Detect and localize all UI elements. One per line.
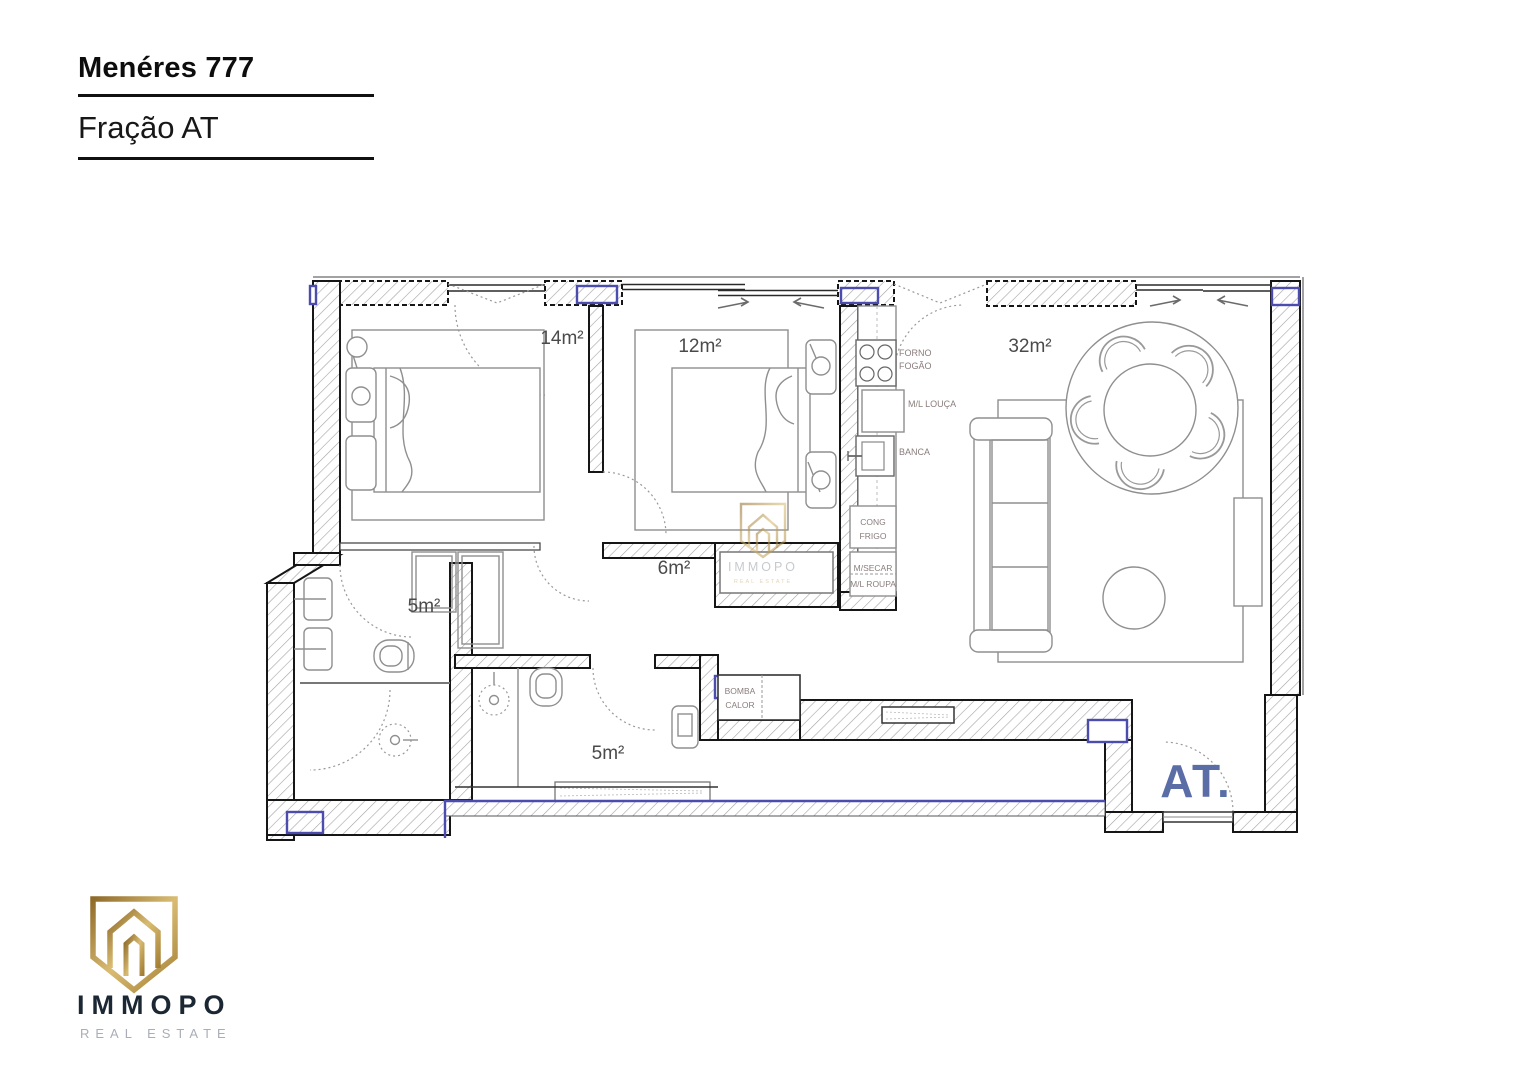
nightstand	[346, 436, 376, 490]
column	[1088, 720, 1127, 742]
column	[287, 812, 323, 833]
door-swing-bathroom2	[593, 668, 655, 730]
wall-entry-bottom-right	[1233, 812, 1297, 832]
column	[1272, 288, 1299, 305]
room-area-label: 32m²	[1008, 336, 1051, 357]
door-swing-bedroom1	[534, 546, 589, 601]
nightstand	[346, 368, 376, 422]
column	[310, 286, 316, 304]
column	[841, 288, 878, 303]
shower-drain-icon	[479, 672, 509, 715]
wall-right	[1271, 281, 1300, 695]
double-bed	[374, 368, 540, 492]
double-bed	[672, 368, 810, 492]
washbasin-icon	[294, 578, 332, 620]
sideboard	[1234, 498, 1262, 606]
table-lamp	[812, 471, 830, 489]
wall-bedroom2-bottom	[603, 543, 715, 558]
washer-label: M/L ROUPA	[850, 579, 896, 589]
wall-terrace-band	[445, 801, 1105, 816]
logo-shield-icon	[93, 899, 175, 990]
page: Menéres 777 Fração AT	[0, 0, 1528, 1080]
heat-pump-label: CALOR	[725, 700, 754, 710]
toilet-icon	[374, 640, 414, 672]
logo-tagline: REAL ESTATE	[80, 1026, 232, 1041]
terrace-ledge	[555, 782, 710, 801]
company-logo: IMMOPO REAL ESTATE	[77, 899, 232, 1041]
living-wall-niche	[882, 707, 954, 723]
room-area-label: 5m²	[592, 743, 625, 764]
dishwasher-label: M/L LOUÇA	[908, 399, 956, 409]
unit-label: AT.	[1160, 755, 1232, 807]
wall-bedroom-divider	[589, 306, 603, 472]
toilet-icon	[530, 668, 562, 706]
sofa	[970, 418, 1052, 652]
wall-utility-bottom	[718, 720, 800, 740]
heat-pump-closet	[718, 675, 800, 720]
wall-bath2-top-left	[455, 655, 590, 668]
entrance-door	[1163, 812, 1233, 822]
door-swing-shower1	[310, 690, 390, 770]
column	[577, 286, 617, 303]
wall-entry-bottom-left	[1105, 812, 1163, 832]
sliding-window-bedroom2	[622, 285, 838, 309]
stove-label: FOGÃO	[899, 361, 932, 371]
bedroom-1	[346, 330, 544, 648]
dining-table	[1104, 364, 1196, 456]
watermark-tagline: REAL ESTATE	[734, 579, 792, 585]
table-lamp	[347, 337, 367, 357]
fridge-freezer	[850, 506, 896, 548]
washbasin-icon	[672, 706, 698, 748]
door-swing-bathroom1	[340, 565, 412, 637]
wall-bath1-top	[294, 553, 340, 565]
room-area-label: 6m²	[658, 558, 691, 579]
dryer-label: M/SECAR	[854, 563, 893, 573]
heat-pump-label: BOMBA	[725, 686, 756, 696]
bathroom-2	[455, 668, 718, 787]
floorplan: 14m² 12m² 32m² 6m² 5m² 5m² FORNO FOGÃO M…	[0, 0, 1528, 1080]
coffee-table	[1103, 567, 1165, 629]
room-area-label: 5m²	[408, 596, 441, 617]
room-area-label: 12m²	[678, 336, 721, 357]
watermark-brand: IMMOPO	[728, 560, 798, 574]
wall-bath1-right	[450, 563, 472, 800]
stove-icon	[856, 340, 896, 386]
sliding-door-living	[1136, 285, 1248, 306]
table-lamp	[812, 357, 830, 375]
wall-living-bottom	[800, 700, 1132, 740]
logo-brand: IMMOPO	[77, 990, 232, 1020]
window-living	[1203, 285, 1271, 291]
stove-label: FORNO	[899, 348, 932, 358]
bedroom-2	[635, 330, 836, 530]
fridge-label: FRIGO	[860, 531, 887, 541]
dishwasher	[862, 390, 904, 432]
washbasin-icon	[294, 628, 332, 670]
kitchen	[848, 306, 904, 596]
shower-drain-icon	[379, 724, 418, 756]
wall-top-4	[987, 281, 1136, 306]
living-room	[970, 322, 1262, 662]
partition-bedroom1-bottom	[340, 543, 540, 550]
sink-label: BANCA	[899, 447, 930, 457]
freezer-label: CONG	[860, 517, 886, 527]
room-area-label: 14m²	[540, 328, 583, 349]
wall-left-upper	[313, 281, 340, 555]
